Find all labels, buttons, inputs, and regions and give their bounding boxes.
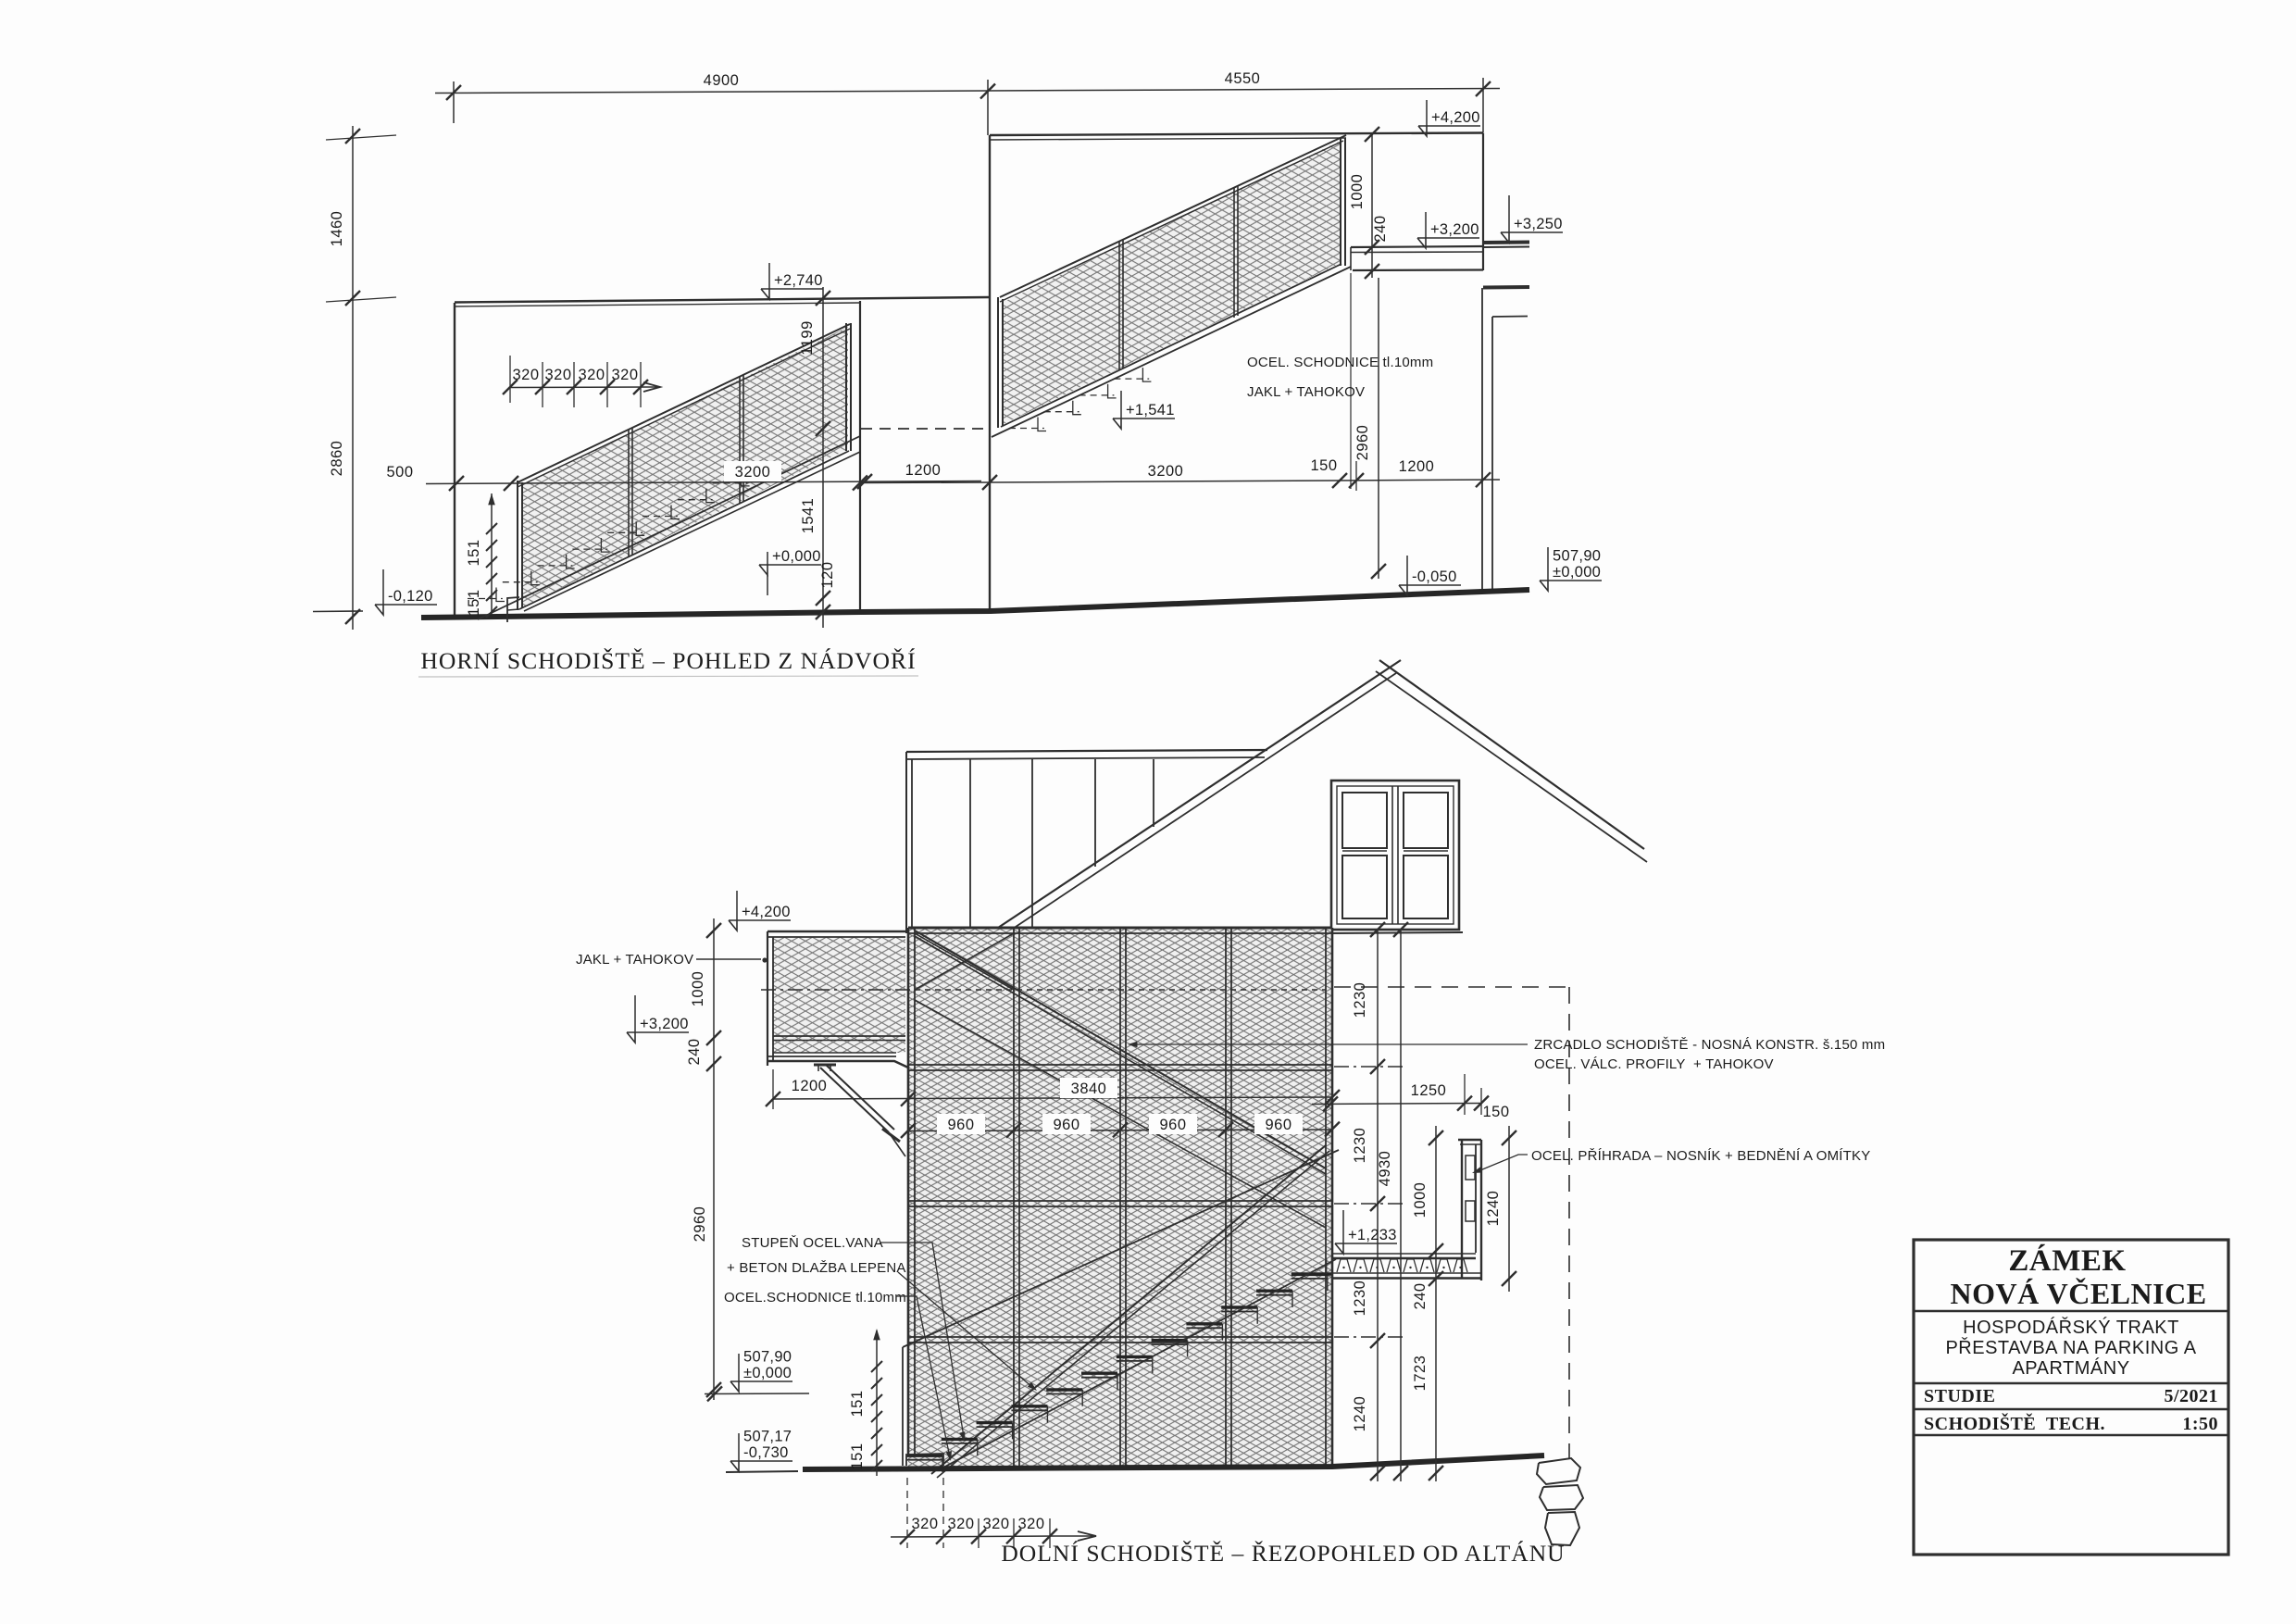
svg-text:STUPEŇ OCEL.VANA: STUPEŇ OCEL.VANA [742,1235,883,1251]
svg-text:ZRCADLO SCHODIŠTĚ - NOSNÁ KONS: ZRCADLO SCHODIŠTĚ - NOSNÁ KONSTR. š.150 … [1534,1037,1885,1053]
svg-text:3200: 3200 [735,464,771,481]
svg-text:1200: 1200 [792,1078,828,1094]
svg-text:320: 320 [911,1516,938,1532]
svg-text:960: 960 [1053,1117,1079,1133]
svg-text:+3,250: +3,250 [1514,216,1563,232]
svg-text:OCEL. SCHODNICE tl.10mm: OCEL. SCHODNICE tl.10mm [1247,355,1433,370]
svg-text:NOVÁ VČELNICE: NOVÁ VČELNICE [1950,1277,2206,1310]
svg-text:151: 151 [849,1390,866,1417]
svg-text:320: 320 [512,367,539,383]
svg-text:320: 320 [544,367,571,383]
svg-text:320: 320 [947,1516,974,1532]
svg-text:240: 240 [1372,215,1389,242]
svg-text:JAKL + TAHOKOV: JAKL + TAHOKOV [1247,384,1365,400]
svg-text:1723: 1723 [1412,1355,1429,1392]
svg-text:320: 320 [578,367,605,383]
svg-text:3840: 3840 [1071,1081,1107,1097]
svg-text:+ BETON DLAŽBA LEPENA: + BETON DLAŽBA LEPENA [727,1260,906,1276]
svg-text:1000: 1000 [1412,1182,1429,1218]
svg-text:+3,200: +3,200 [640,1016,689,1032]
svg-text:1541: 1541 [800,498,817,534]
svg-text:4550: 4550 [1225,70,1261,87]
svg-text:OCEL. PŘÍHRADA – NOSNÍK + BEDN: OCEL. PŘÍHRADA – NOSNÍK + BEDNĚNÍ A OMÍT… [1531,1148,1870,1164]
svg-text:OCEL.SCHODNICE tl.10mm: OCEL.SCHODNICE tl.10mm [724,1290,906,1305]
svg-text:150: 150 [1482,1104,1509,1120]
svg-text:HOSPODÁŘSKÝ TRAKT: HOSPODÁŘSKÝ TRAKT [1963,1317,2179,1338]
svg-text:+2,740: +2,740 [774,272,823,289]
svg-text:320: 320 [1017,1516,1044,1532]
svg-text:±0,000: ±0,000 [743,1365,792,1381]
svg-text:500: 500 [386,464,413,481]
svg-text:-0,120: -0,120 [388,588,433,605]
svg-text:2960: 2960 [1354,425,1371,461]
svg-text:1240: 1240 [1485,1191,1502,1227]
svg-text:507,90: 507,90 [1553,548,1601,565]
svg-text:1250: 1250 [1411,1082,1447,1099]
svg-text:+4,200: +4,200 [1431,109,1480,126]
svg-text:+3,200: +3,200 [1430,221,1479,238]
svg-text:1230: 1230 [1352,982,1368,1018]
svg-text:1230: 1230 [1352,1280,1368,1317]
svg-text:240: 240 [686,1038,703,1065]
svg-text:1460: 1460 [329,211,345,247]
svg-text:4900: 4900 [704,72,740,89]
svg-text:APARTMÁNY: APARTMÁNY [2012,1357,2129,1379]
svg-text:ZÁMEK: ZÁMEK [2008,1243,2126,1278]
svg-text:JAKL + TAHOKOV: JAKL + TAHOKOV [576,952,693,968]
svg-text:1230: 1230 [1352,1128,1368,1164]
svg-text:4930: 4930 [1377,1151,1393,1187]
svg-text:1000: 1000 [690,971,706,1007]
svg-text:-0,730: -0,730 [743,1444,789,1461]
svg-text:+1,541: +1,541 [1126,402,1175,418]
svg-text:1200: 1200 [1399,458,1435,475]
svg-text:320: 320 [611,367,638,383]
svg-text:-0,050: -0,050 [1412,568,1457,585]
svg-text:960: 960 [947,1117,974,1133]
svg-text:151: 151 [849,1443,866,1469]
svg-text:151: 151 [466,539,482,566]
svg-text:1199: 1199 [799,320,816,355]
svg-text:PŘESTAVBA NA PARKING A: PŘESTAVBA NA PARKING A [1945,1337,2196,1358]
svg-text:DOLNÍ SCHODIŠTĚ – ŘEZOPOHLED O: DOLNÍ SCHODIŠTĚ – ŘEZOPOHLED OD ALTÁNU [1001,1540,1565,1567]
svg-text:960: 960 [1265,1117,1291,1133]
svg-text:5/2021: 5/2021 [2164,1386,2218,1406]
svg-text:2960: 2960 [692,1206,708,1243]
svg-text:240: 240 [1412,1282,1429,1309]
svg-text:±0,000: ±0,000 [1553,564,1601,581]
svg-text:507,17: 507,17 [743,1429,792,1445]
svg-text:150: 150 [1310,457,1337,474]
svg-text:151: 151 [466,589,482,616]
svg-text:1200: 1200 [905,462,942,479]
svg-text:2860: 2860 [329,441,345,477]
svg-text:960: 960 [1159,1117,1186,1133]
svg-text:HORNÍ SCHODIŠTĚ – POHLED Z NÁD: HORNÍ SCHODIŠTĚ – POHLED Z NÁDVOŘÍ [420,647,916,674]
svg-text:+4,200: +4,200 [742,904,791,920]
svg-text:320: 320 [982,1516,1009,1532]
svg-text:1000: 1000 [1349,174,1366,210]
svg-text:+1,233: +1,233 [1348,1227,1397,1243]
svg-text:OCEL. VÁLC. PROFILY + TAHOKOV: OCEL. VÁLC. PROFILY + TAHOKOV [1534,1056,1774,1072]
svg-text:507,90: 507,90 [743,1349,792,1366]
svg-text:1240: 1240 [1352,1396,1368,1432]
svg-text:STUDIE: STUDIE [1924,1386,1995,1406]
svg-text:1:50: 1:50 [2182,1414,2218,1434]
svg-text:3200: 3200 [1148,463,1184,480]
svg-text:SCHODIŠTĚ TECH.: SCHODIŠTĚ TECH. [1924,1412,2105,1434]
svg-text:120: 120 [819,561,836,588]
svg-text:+0,000: +0,000 [772,548,821,565]
